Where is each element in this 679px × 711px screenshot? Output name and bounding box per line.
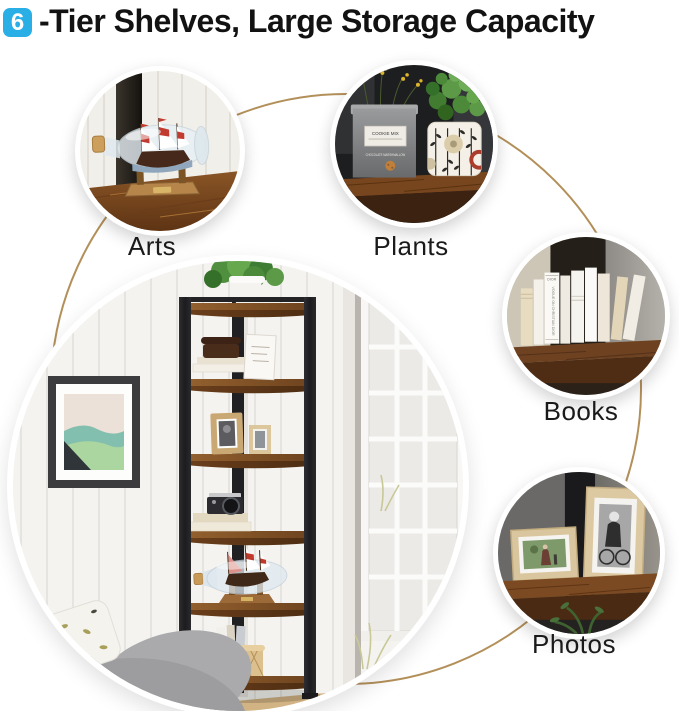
tier-count-badge: 6 xyxy=(3,8,32,37)
corner-shelf-scene xyxy=(13,261,463,711)
plants-scene: COOKIE MIX CHOCOLATE MARSHMALLOW xyxy=(335,65,493,223)
picture-frame-landscape xyxy=(511,527,578,581)
callout-photo-photos xyxy=(493,467,665,639)
photos-scene xyxy=(498,472,660,634)
patterned-pot xyxy=(424,122,487,175)
tin-sub-text: CHOCOLATE MARSHMALLOW xyxy=(366,153,406,157)
books-scene: DIOR VOGUE ON CHRISTIAN DIOR xyxy=(507,237,665,395)
tin-label-text: COOKIE MIX xyxy=(372,131,399,136)
label-photos: Photos xyxy=(494,629,654,660)
picture-frame-portrait xyxy=(584,487,646,584)
label-books: Books xyxy=(501,396,661,427)
wall-art-frame xyxy=(48,376,140,488)
callout-photo-plants: COOKIE MIX CHOCOLATE MARSHMALLOW xyxy=(330,60,498,228)
label-arts: Arts xyxy=(72,231,232,262)
page-header: 6 -Tier Shelves, Large Storage Capacity xyxy=(3,3,594,40)
main-product-photo xyxy=(7,255,469,711)
arts-scene xyxy=(80,71,240,231)
page-title: -Tier Shelves, Large Storage Capacity xyxy=(39,3,594,40)
label-plants: Plants xyxy=(331,231,491,262)
callout-photo-arts xyxy=(75,66,245,236)
callout-photo-books: DIOR VOGUE ON CHRISTIAN DIOR xyxy=(502,232,670,400)
book-spine-brand: DIOR xyxy=(547,277,557,281)
book-spine-title: VOGUE ON CHRISTIAN DIOR xyxy=(551,287,555,337)
product-infographic: 6 -Tier Shelves, Large Storage Capacity xyxy=(0,0,679,711)
cookie-tin: COOKIE MIX CHOCOLATE MARSHMALLOW xyxy=(351,105,418,178)
